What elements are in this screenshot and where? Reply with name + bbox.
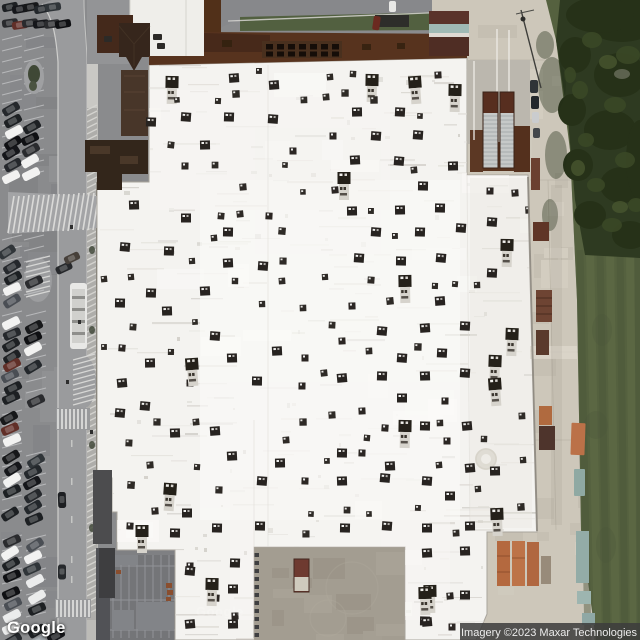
svg-text:Google: Google <box>196 604 244 619</box>
